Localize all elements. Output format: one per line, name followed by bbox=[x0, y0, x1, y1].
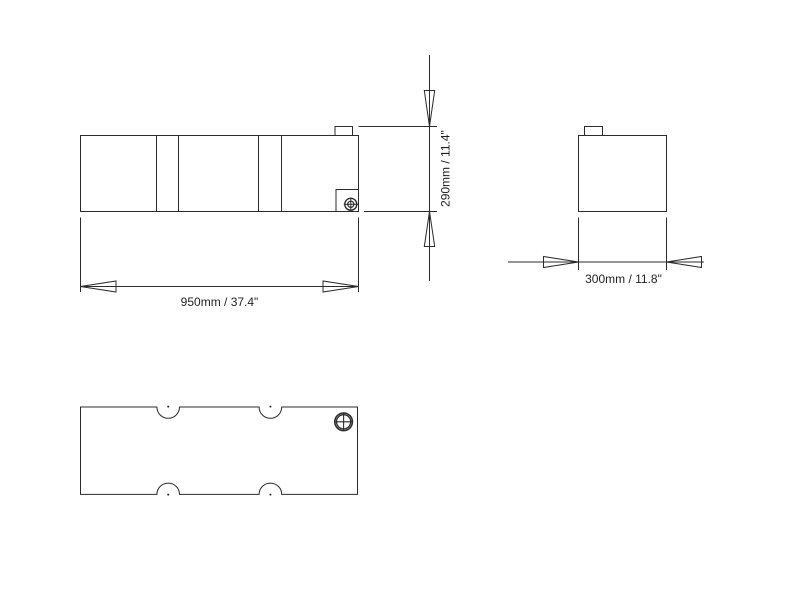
svg-text:300mm / 11.8": 300mm / 11.8" bbox=[585, 272, 662, 286]
svg-text:950mm / 37.4": 950mm / 37.4" bbox=[181, 295, 259, 309]
svg-text:290mm / 11.4": 290mm / 11.4" bbox=[438, 130, 452, 207]
